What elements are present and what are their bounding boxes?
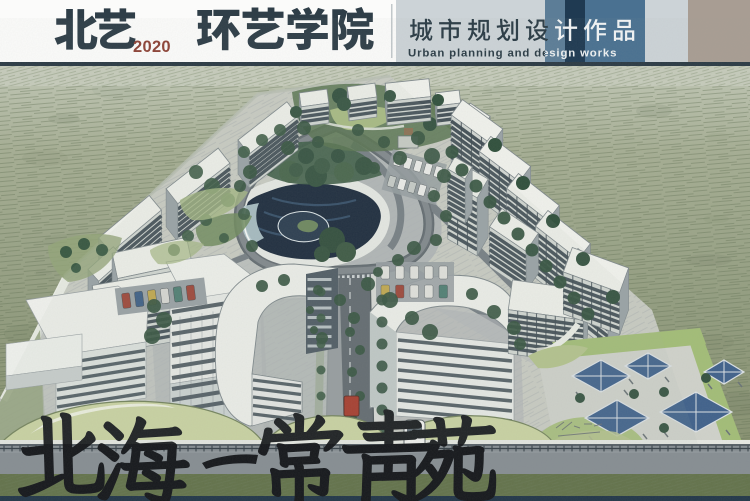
svg-text:2020: 2020 <box>133 38 171 56</box>
